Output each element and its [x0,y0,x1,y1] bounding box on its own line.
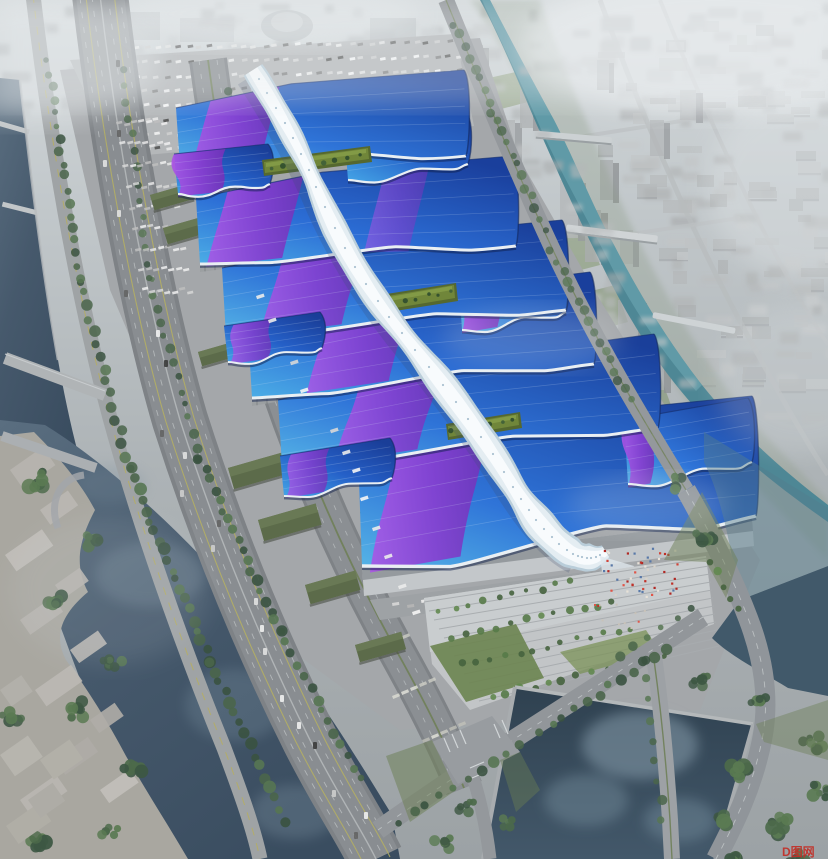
svg-text:D图网: D图网 [782,845,815,859]
